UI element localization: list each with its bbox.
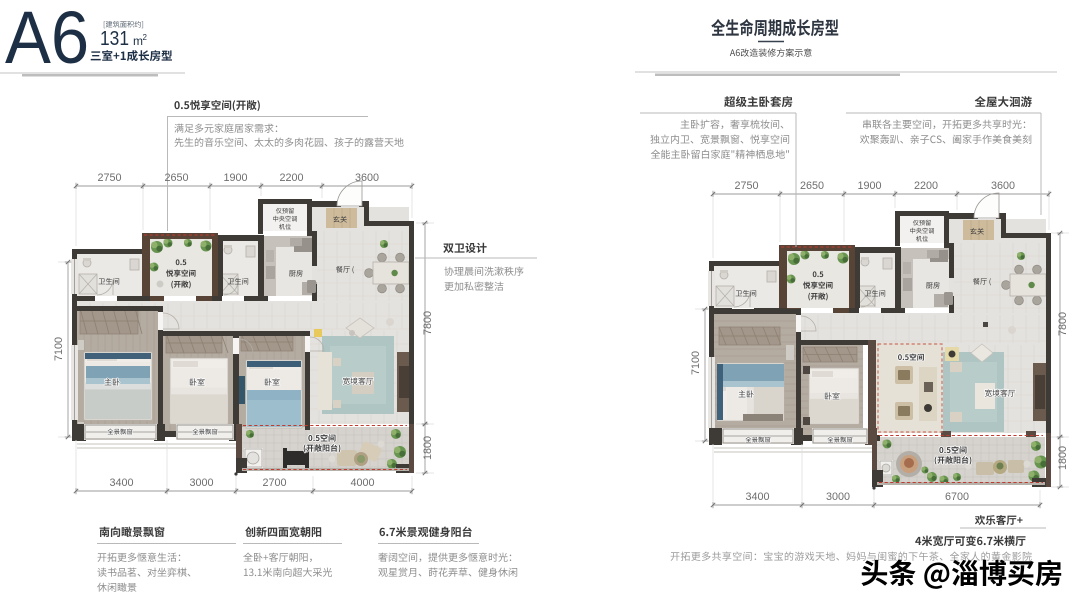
svg-text:m: m bbox=[133, 34, 143, 48]
svg-text:6700: 6700 bbox=[945, 491, 969, 503]
svg-text:3400: 3400 bbox=[745, 491, 769, 503]
svg-text:7100: 7100 bbox=[690, 351, 702, 375]
svg-text:3600: 3600 bbox=[355, 172, 379, 184]
svg-text:2650: 2650 bbox=[164, 172, 188, 184]
svg-text:7800: 7800 bbox=[1057, 312, 1069, 336]
svg-text:1800: 1800 bbox=[422, 436, 434, 460]
svg-text:1900: 1900 bbox=[857, 180, 881, 192]
svg-text:2650: 2650 bbox=[800, 180, 824, 192]
svg-text:3000: 3000 bbox=[826, 491, 850, 503]
svg-text:1900: 1900 bbox=[223, 172, 247, 184]
svg-text:2: 2 bbox=[143, 33, 148, 42]
svg-text:3400: 3400 bbox=[109, 477, 133, 489]
svg-text:2200: 2200 bbox=[914, 180, 938, 192]
svg-text:3600: 3600 bbox=[991, 180, 1015, 192]
svg-text:A6: A6 bbox=[5, 0, 89, 80]
svg-text:3000: 3000 bbox=[189, 477, 213, 489]
svg-text:7800: 7800 bbox=[422, 311, 434, 335]
svg-text:4000: 4000 bbox=[350, 477, 374, 489]
svg-text:2750: 2750 bbox=[734, 180, 758, 192]
svg-text:2200: 2200 bbox=[279, 172, 303, 184]
svg-text:7100: 7100 bbox=[53, 337, 65, 361]
svg-text:2700: 2700 bbox=[262, 477, 286, 489]
svg-text:1800: 1800 bbox=[1057, 446, 1069, 470]
svg-text:2750: 2750 bbox=[97, 172, 121, 184]
svg-text:131: 131 bbox=[100, 27, 129, 49]
